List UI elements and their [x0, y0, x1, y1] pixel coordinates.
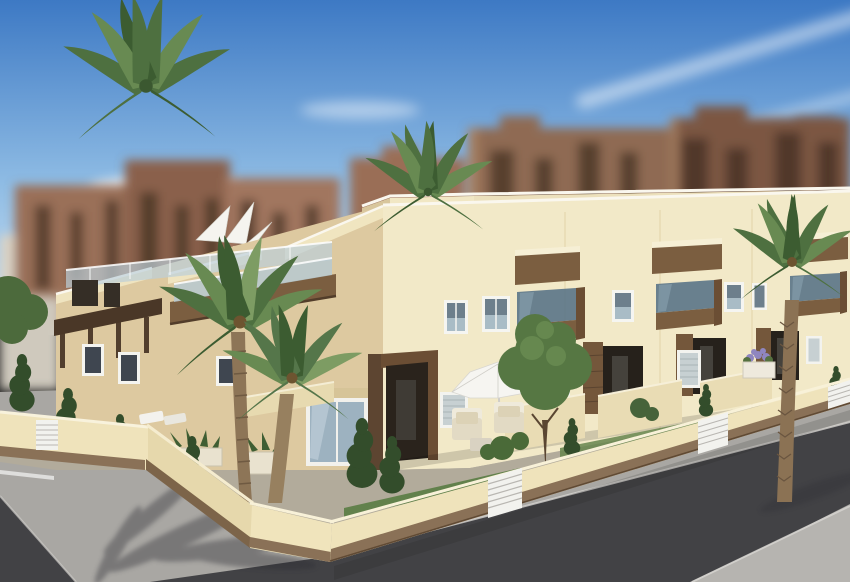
window	[482, 296, 510, 332]
window	[444, 300, 468, 334]
balcony	[656, 279, 722, 330]
window	[118, 352, 140, 384]
patio-armchair	[494, 402, 524, 433]
background-building	[795, 116, 837, 128]
window	[82, 344, 104, 376]
cloud	[300, 101, 420, 119]
window	[752, 283, 767, 310]
shutter-window	[806, 336, 822, 364]
background-building	[695, 106, 747, 120]
window	[724, 282, 744, 312]
architectural-render-image	[0, 0, 850, 582]
balcony-recess	[72, 280, 98, 306]
window	[612, 290, 634, 322]
balcony-recess	[104, 283, 120, 307]
roof-wood-fascia	[515, 252, 580, 285]
gate	[36, 420, 58, 450]
roof-wood-fascia	[652, 244, 722, 274]
patio-armchair	[452, 408, 482, 440]
balcony	[790, 271, 847, 317]
background-building	[500, 116, 540, 130]
